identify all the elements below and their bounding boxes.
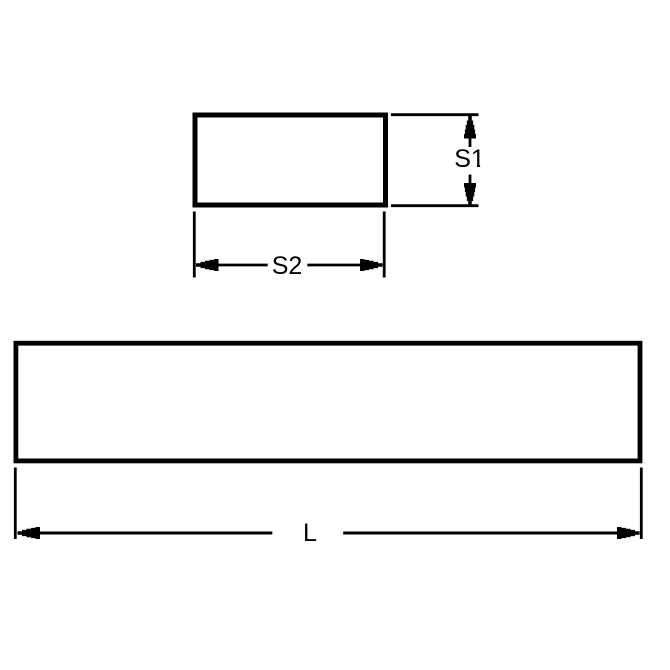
svg-text:L: L: [303, 519, 317, 547]
svg-text:S1: S1: [454, 145, 485, 173]
svg-text:S2: S2: [272, 252, 303, 280]
